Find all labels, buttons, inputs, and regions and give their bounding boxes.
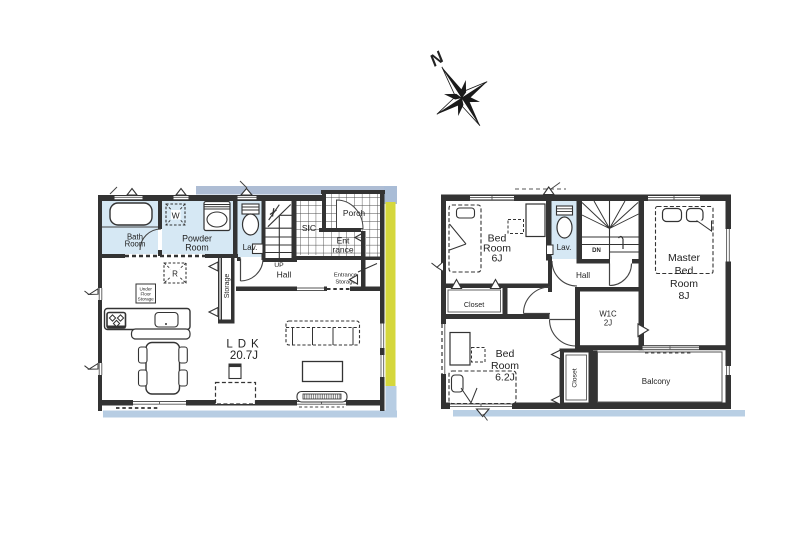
svg-text:Master: Master: [668, 252, 701, 264]
svg-text:Closet: Closet: [572, 368, 579, 387]
svg-text:Room: Room: [670, 278, 698, 290]
svg-text:Porch: Porch: [343, 208, 365, 218]
svg-text:8J: 8J: [678, 290, 689, 302]
svg-text:20.7J: 20.7J: [230, 350, 258, 362]
svg-text:Hall: Hall: [277, 270, 292, 280]
svg-text:W: W: [172, 210, 180, 220]
svg-text:UP: UP: [274, 262, 284, 269]
svg-text:Room: Room: [491, 360, 519, 372]
svg-text:Storage: Storage: [138, 297, 155, 302]
svg-text:Balcony: Balcony: [642, 377, 670, 386]
svg-text:rance: rance: [332, 245, 354, 255]
svg-text:Lav.: Lav.: [243, 243, 258, 252]
svg-text:DN: DN: [592, 248, 601, 254]
svg-text:Lav.: Lav.: [557, 243, 572, 252]
svg-text:Bed: Bed: [675, 265, 694, 277]
svg-text:Room: Room: [125, 240, 146, 249]
svg-text:R: R: [172, 270, 178, 279]
svg-text:2J: 2J: [604, 319, 612, 328]
svg-text:Hall: Hall: [576, 271, 590, 280]
svg-text:SIC: SIC: [302, 223, 316, 233]
svg-text:Bed: Bed: [496, 348, 515, 360]
svg-text:6.2J: 6.2J: [495, 372, 515, 384]
svg-text:W1C: W1C: [599, 310, 617, 319]
svg-text:Closet: Closet: [464, 300, 484, 309]
svg-text:Storage: Storage: [224, 274, 231, 299]
svg-text:LDK: LDK: [226, 339, 263, 351]
svg-text:Room: Room: [185, 243, 208, 253]
svg-text:6J: 6J: [491, 253, 502, 265]
